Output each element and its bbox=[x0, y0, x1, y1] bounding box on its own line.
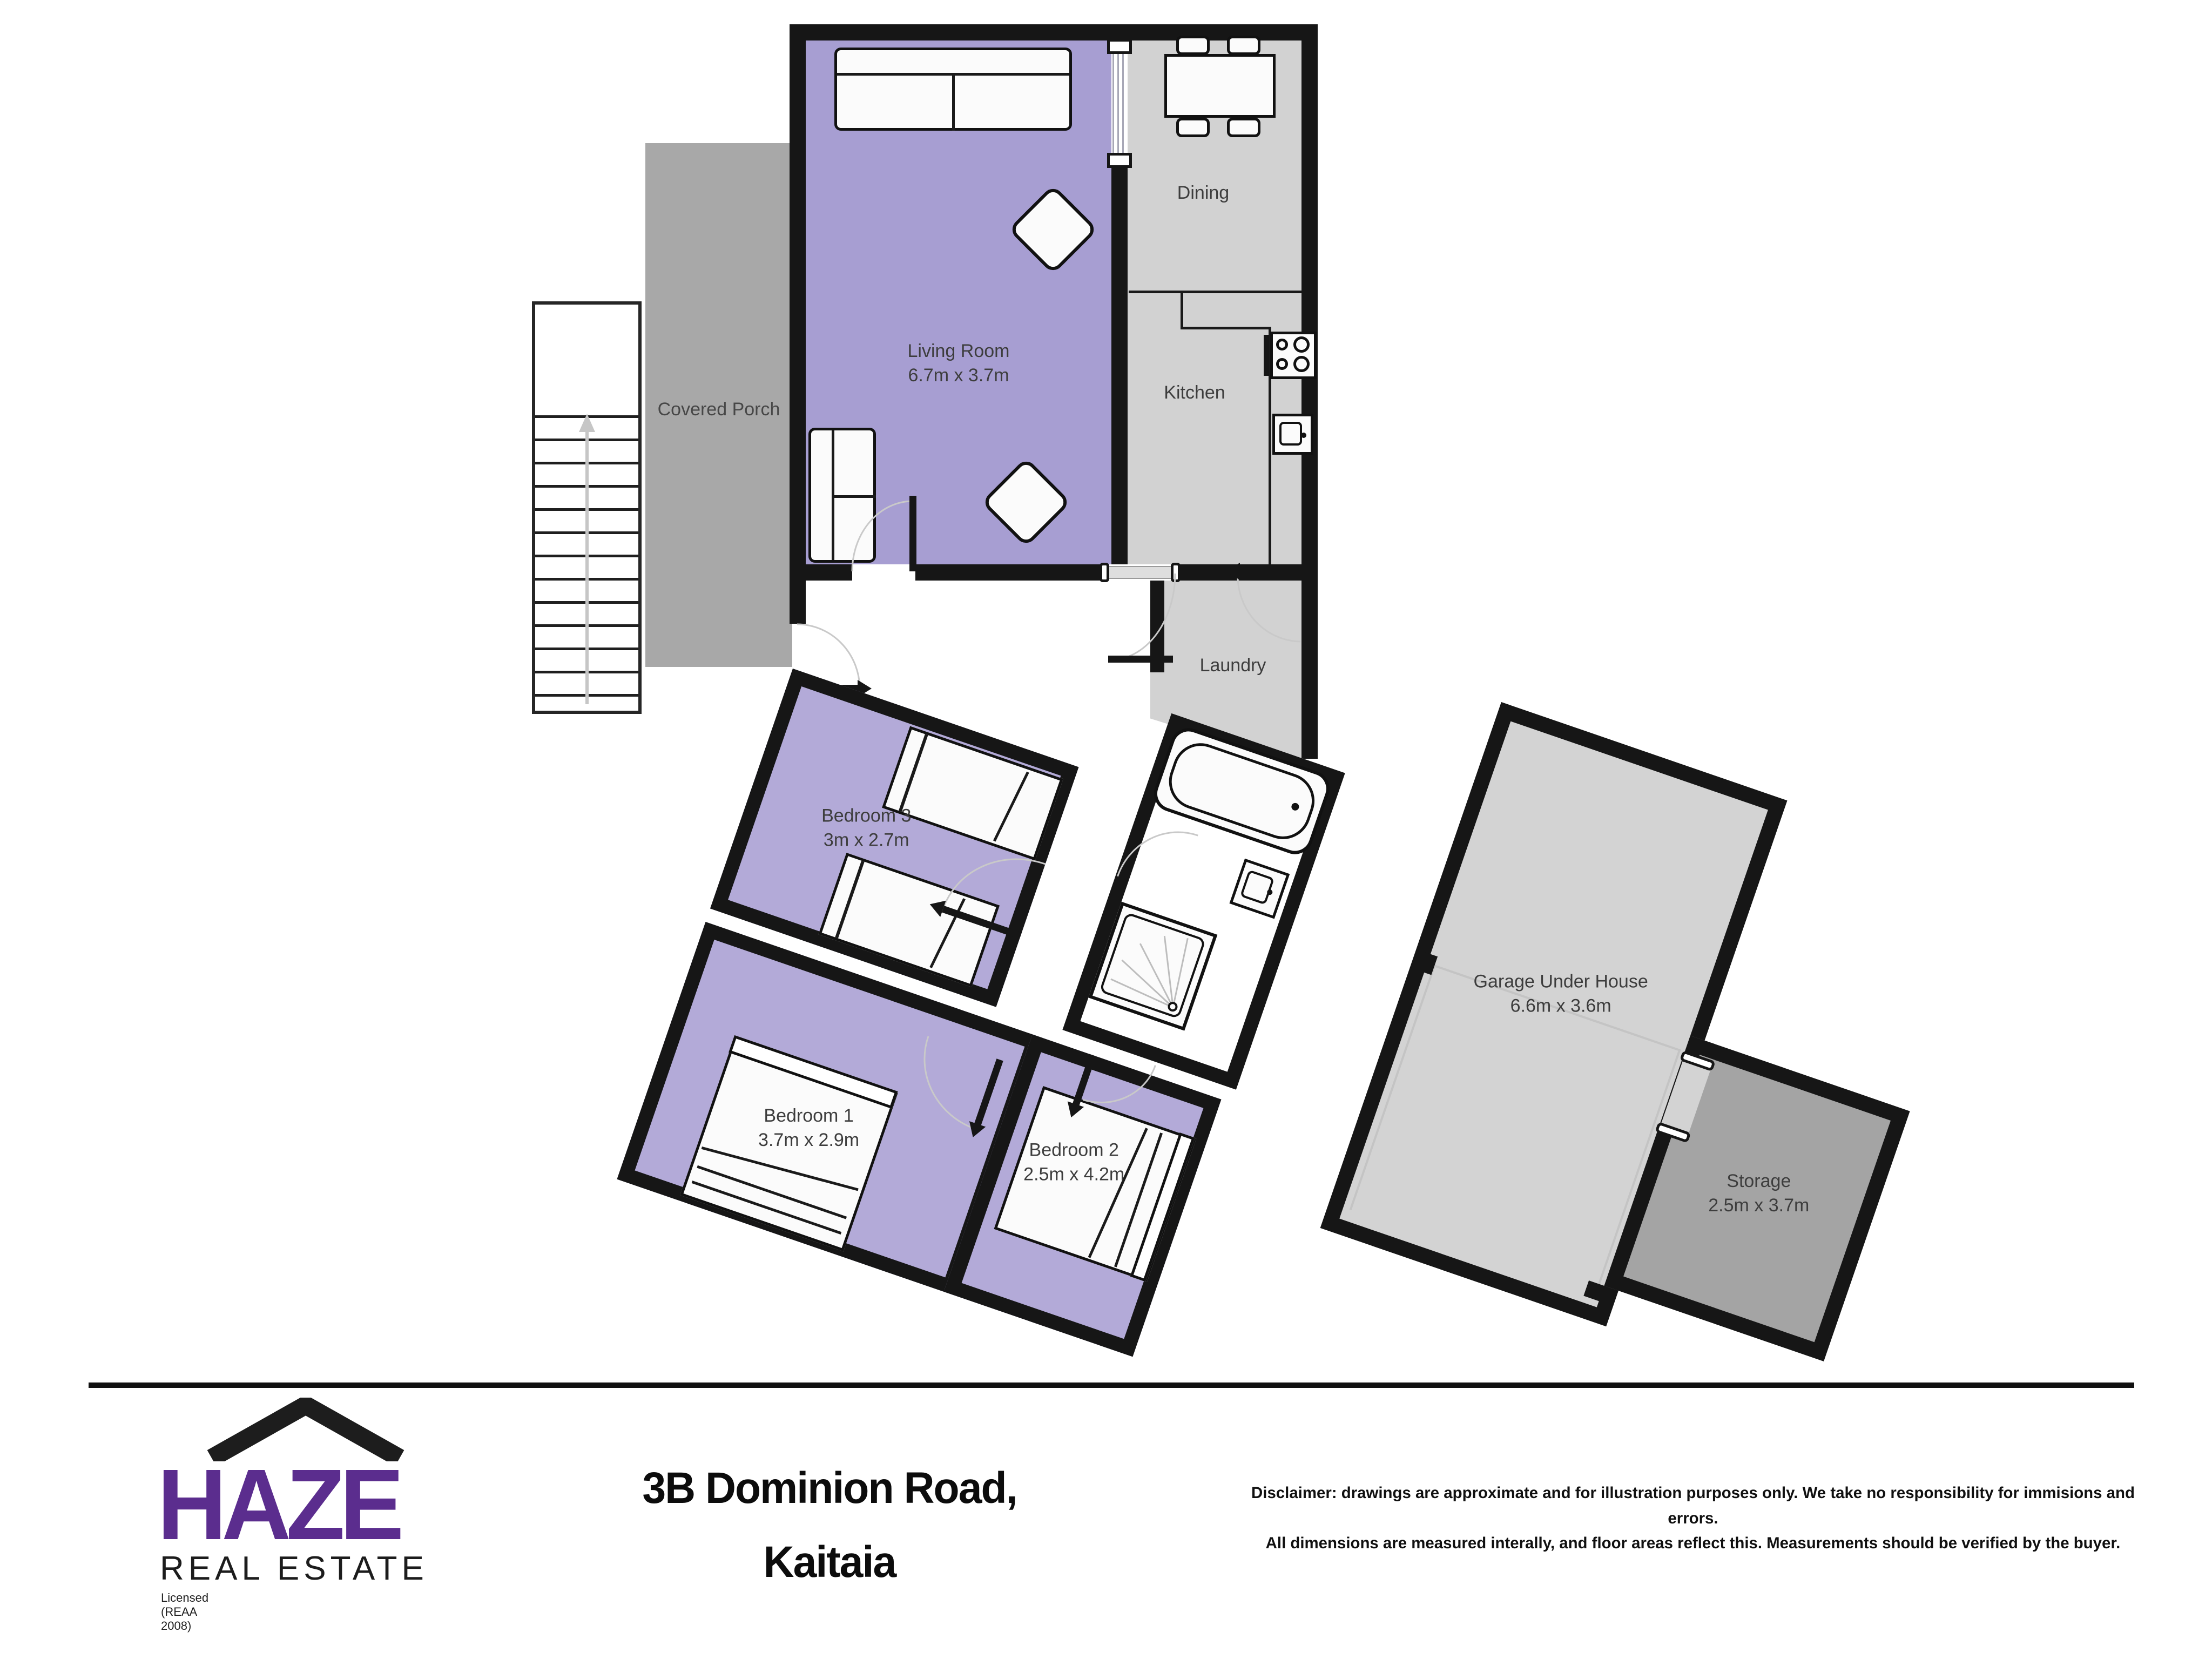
bed-fold-line bbox=[702, 1147, 859, 1191]
sink-basin-icon bbox=[1240, 869, 1274, 905]
stove-burner-icon bbox=[1293, 336, 1310, 353]
room-label-living: Living Room 6.7m x 3.7m bbox=[883, 339, 1034, 388]
sofa-large-icon bbox=[834, 48, 1072, 131]
window-jamb-bottom bbox=[1107, 153, 1132, 168]
room-label-garage: Garage Under House 6.6m x 3.6m bbox=[1453, 969, 1669, 1018]
door-arrow-laundry bbox=[1226, 563, 1240, 580]
door-leaf-laundry bbox=[1240, 568, 1304, 575]
dining-chair-icon bbox=[1227, 36, 1260, 55]
dining-chair-icon bbox=[1176, 118, 1210, 137]
stove-wall-marker bbox=[1264, 335, 1269, 376]
dining-table-icon bbox=[1164, 54, 1276, 118]
bed-headboard-line bbox=[899, 734, 928, 812]
disclaimer-text: Disclaimer: drawings are approximate and… bbox=[1235, 1481, 2150, 1556]
sofa-cushion-line bbox=[952, 73, 955, 131]
room-dining-kitchen bbox=[1128, 41, 1301, 564]
sink-tap-icon bbox=[1301, 433, 1306, 438]
window-living-dining bbox=[1112, 52, 1127, 155]
logo-subtitle-text: REAL ESTATE bbox=[160, 1552, 462, 1586]
disclaimer-line-1: Disclaimer: drawings are approximate and… bbox=[1235, 1481, 2150, 1531]
stair-up-arrow-icon bbox=[579, 414, 595, 432]
kitchen-counter-line-c bbox=[1181, 327, 1270, 329]
door-leaf-living bbox=[909, 496, 916, 571]
sofa-cushion-line bbox=[832, 495, 876, 498]
bed-headboard-line bbox=[835, 861, 865, 939]
door-arc-living bbox=[851, 500, 915, 573]
window-jamb-top bbox=[1107, 39, 1132, 54]
staircase bbox=[532, 301, 642, 714]
room-label-storage: Storage 2.5m x 3.7m bbox=[1662, 1169, 1856, 1218]
room-label-covered-porch: Covered Porch bbox=[645, 397, 792, 422]
dining-chair-icon bbox=[1176, 36, 1210, 55]
room-label-dining: Dining bbox=[1144, 181, 1263, 205]
stair-direction-line bbox=[585, 431, 589, 704]
wall-right bbox=[1301, 24, 1318, 759]
door-leaf-kitchen-hall bbox=[1108, 656, 1173, 663]
property-address: 3B Dominion Road, Kaitaia bbox=[586, 1452, 1073, 1600]
logo-brand-text: HAZE bbox=[157, 1455, 448, 1555]
stove-icon bbox=[1270, 332, 1317, 379]
room-label-bedroom-3: Bedroom 3 3m x 2.7m bbox=[796, 804, 936, 852]
address-line-1: 3B Dominion Road, bbox=[586, 1452, 1073, 1526]
door-arc-kitchen-hall bbox=[1107, 571, 1178, 663]
disclaimer-line-2: All dimensions are measured interally, a… bbox=[1235, 1531, 2150, 1556]
kitchen-sink-icon bbox=[1272, 414, 1313, 455]
wall-left bbox=[790, 24, 806, 624]
stove-burner-icon bbox=[1276, 339, 1288, 350]
wall-divider-main bbox=[1111, 155, 1128, 564]
room-label-kitchen: Kitchen bbox=[1135, 381, 1254, 405]
room-label-bedroom-1: Bedroom 1 3.7m x 2.9m bbox=[733, 1104, 885, 1152]
room-label-laundry: Laundry bbox=[1165, 653, 1300, 678]
room-label-bedroom-2: Bedroom 2 2.5m x 4.2m bbox=[999, 1138, 1150, 1186]
address-line-2: Kaitaia bbox=[586, 1526, 1073, 1600]
dining-chair-icon bbox=[1227, 118, 1260, 137]
footer-divider bbox=[89, 1382, 2134, 1388]
floorplan-page: Covered Porch Dining Kitchen Living Room… bbox=[0, 0, 2212, 1659]
stove-burner-icon bbox=[1293, 356, 1310, 372]
wall-bottom-seg1 bbox=[790, 564, 852, 581]
bed-fold-line bbox=[993, 772, 1029, 842]
kitchen-counter-line-b bbox=[1181, 291, 1183, 329]
wall-bottom-seg2 bbox=[915, 564, 1105, 581]
stove-burner-icon bbox=[1276, 358, 1288, 370]
sink-basin-icon bbox=[1279, 422, 1302, 446]
door-arc-laundry bbox=[1235, 572, 1305, 644]
logo-license-text: Licensed (REAA 2008) bbox=[161, 1591, 208, 1633]
kitchen-counter-line-a bbox=[1129, 291, 1301, 293]
